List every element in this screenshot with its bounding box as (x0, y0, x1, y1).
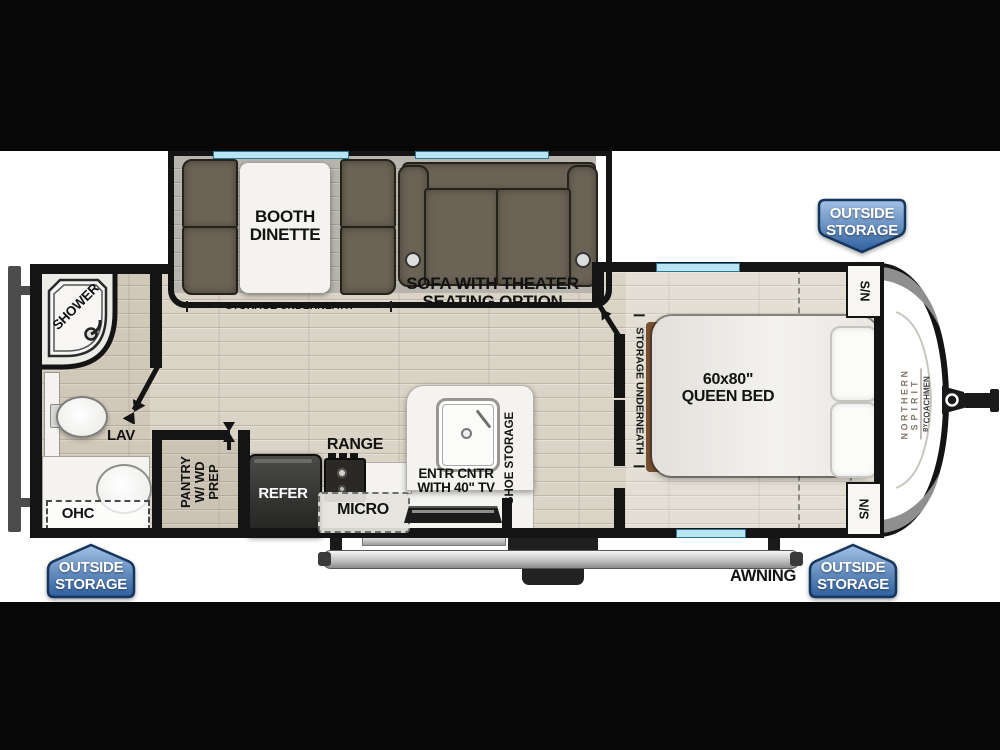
shoe-storage-label: SHOE STORAGE (498, 412, 522, 504)
entr-line1: ENTR CNTR (418, 466, 493, 481)
sofa-label: SOFA WITH THEATER SEATING OPTION (400, 275, 585, 310)
dash-tick (186, 301, 188, 312)
bed-line2: QUEEN BED (682, 388, 774, 405)
booth-dinette-label: BOOTH DINETTE (240, 208, 330, 243)
dash-tick (635, 314, 646, 316)
micro-label: MICRO (318, 502, 408, 519)
outside-storage-badge-front: OUTSIDE STORAGE (806, 542, 900, 600)
lav-label: LAV (96, 428, 146, 444)
entr-cntr-label: ENTR CNTR WITH 40" TV (404, 467, 508, 495)
brand-logo: NORTHERN SPIRIT BYCOACHMEN (889, 344, 941, 464)
dash-tick (635, 466, 646, 468)
booth-dinette-line2: DINETTE (250, 225, 321, 244)
sofa-label-line1: SOFA WITH THEATER (406, 274, 578, 293)
nightstand-top: S/N (846, 264, 882, 318)
range-knob (339, 453, 347, 458)
wall-rear (30, 264, 42, 538)
wall-top-right (597, 262, 883, 272)
bed-storage-underneath-label: STORAGE UNDERNEATH (628, 302, 652, 480)
outside-storage-line2: STORAGE (826, 222, 898, 239)
brand-coachmen: COACHMEN (922, 376, 931, 423)
outside-storage-line2: STORAGE (817, 576, 889, 593)
range-text: RANGE (327, 436, 383, 453)
outside-storage-line1: OUTSIDE (821, 559, 886, 576)
lav-text: LAV (107, 427, 135, 444)
floorplan-canvas: BOOTH DINETTE SOFA WITH THEATER SEATING … (0, 0, 1000, 750)
range-knob (350, 453, 358, 458)
ohc-text: OHC (62, 505, 94, 522)
storage-underneath-text: STORAGE UNDERNEATH (222, 300, 355, 312)
entr-line2: WITH 40" TV (417, 480, 494, 495)
sofa-window (415, 151, 549, 159)
ohc-label: OHC (48, 506, 108, 522)
dash-tick (390, 301, 392, 312)
bedroom-window-top (656, 263, 740, 272)
awning-text: AWNING (730, 567, 796, 585)
nightstand-bottom-text: S/N (857, 499, 871, 520)
outside-storage-badge-top: OUTSIDE STORAGE (815, 197, 909, 255)
pantry-line2: W/ WD (192, 461, 207, 502)
queen-bed-label: 60x80" QUEEN BED (660, 372, 796, 405)
awning-cap-left (318, 552, 331, 566)
bedroom-divider-wall-3 (614, 488, 625, 530)
range-knob (328, 453, 336, 458)
bathroom-door-icon (118, 356, 170, 424)
booth-dinette-line1: BOOTH (255, 207, 315, 226)
letterbox-bottom (0, 602, 1000, 750)
outside-storage-line1: OUTSIDE (830, 205, 895, 222)
outside-storage-line1: OUTSIDE (59, 559, 124, 576)
bed-line1: 60x80" (703, 371, 753, 388)
dinette-storage-underneath-label: STORAGE UNDERNEATH (186, 300, 392, 312)
refer-text: REFER (258, 485, 307, 502)
nightstand-top-text: S/N (857, 281, 871, 302)
brand-by: BY (923, 423, 929, 431)
awning-label: AWNING (718, 568, 808, 585)
bedroom-window-bottom (676, 529, 746, 538)
range-burner-icon (332, 463, 352, 483)
sink-drain-icon (461, 428, 472, 439)
pantry-label: PANTRY W/ WD PREP (150, 444, 250, 520)
refrigerator-handle (254, 459, 312, 463)
bedroom-door-icon (588, 294, 632, 346)
letterbox-top (0, 0, 1000, 151)
refer-label: REFER (248, 486, 318, 502)
micro-text: MICRO (337, 501, 389, 518)
storage-underneath-text-2: STORAGE UNDERNEATH (634, 324, 646, 457)
sofa-label-line2: SEATING OPTION (423, 292, 563, 311)
bedroom-divider-wall-2 (614, 400, 625, 466)
shoe-storage-text: SHOE STORAGE (504, 412, 516, 504)
rear-bumper (8, 266, 21, 532)
dinette-window (213, 151, 349, 159)
pantry-line1: PANTRY (178, 456, 193, 508)
pantry-line3: PREP (206, 464, 221, 499)
nightstand-bottom: S/N (846, 482, 882, 536)
bathroom-wall (150, 272, 162, 368)
outside-storage-badge-rear: OUTSIDE STORAGE (44, 542, 138, 600)
range-label: RANGE (320, 437, 390, 454)
outside-storage-line2: STORAGE (55, 576, 127, 593)
dash-line (192, 305, 218, 307)
dash-line (360, 305, 386, 307)
awning-tube (322, 550, 800, 569)
tv-icon (404, 506, 502, 523)
tv-screen-line (412, 510, 494, 513)
awning-cap-right (790, 552, 803, 566)
brand-northern: NORTHERN (899, 369, 909, 440)
brand-spirit: SPIRIT (909, 369, 921, 440)
